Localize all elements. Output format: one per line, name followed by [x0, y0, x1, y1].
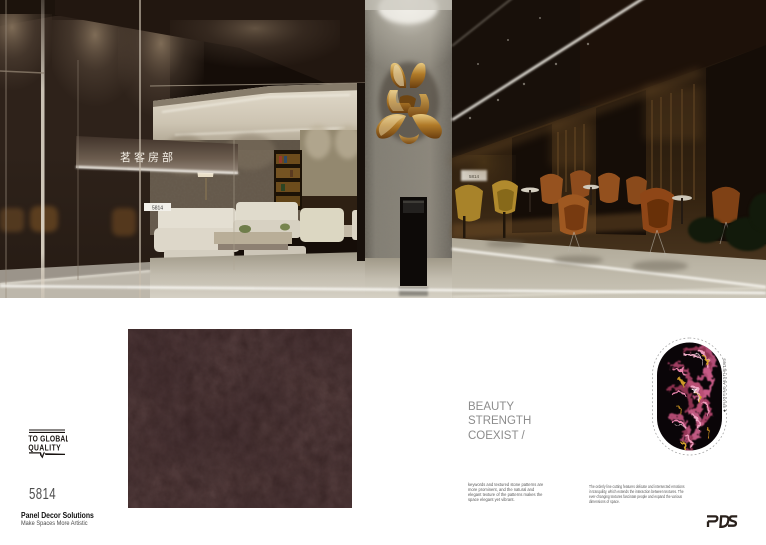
svg-text:茗客房部: 茗客房部 [120, 150, 176, 164]
svg-text:QUALITY: QUALITY [28, 443, 61, 453]
svg-text:5814: 5814 [152, 205, 163, 211]
svg-text:◆ ENJOYING AESTHETICS: ◆ ENJOYING AESTHETICS [723, 358, 727, 412]
